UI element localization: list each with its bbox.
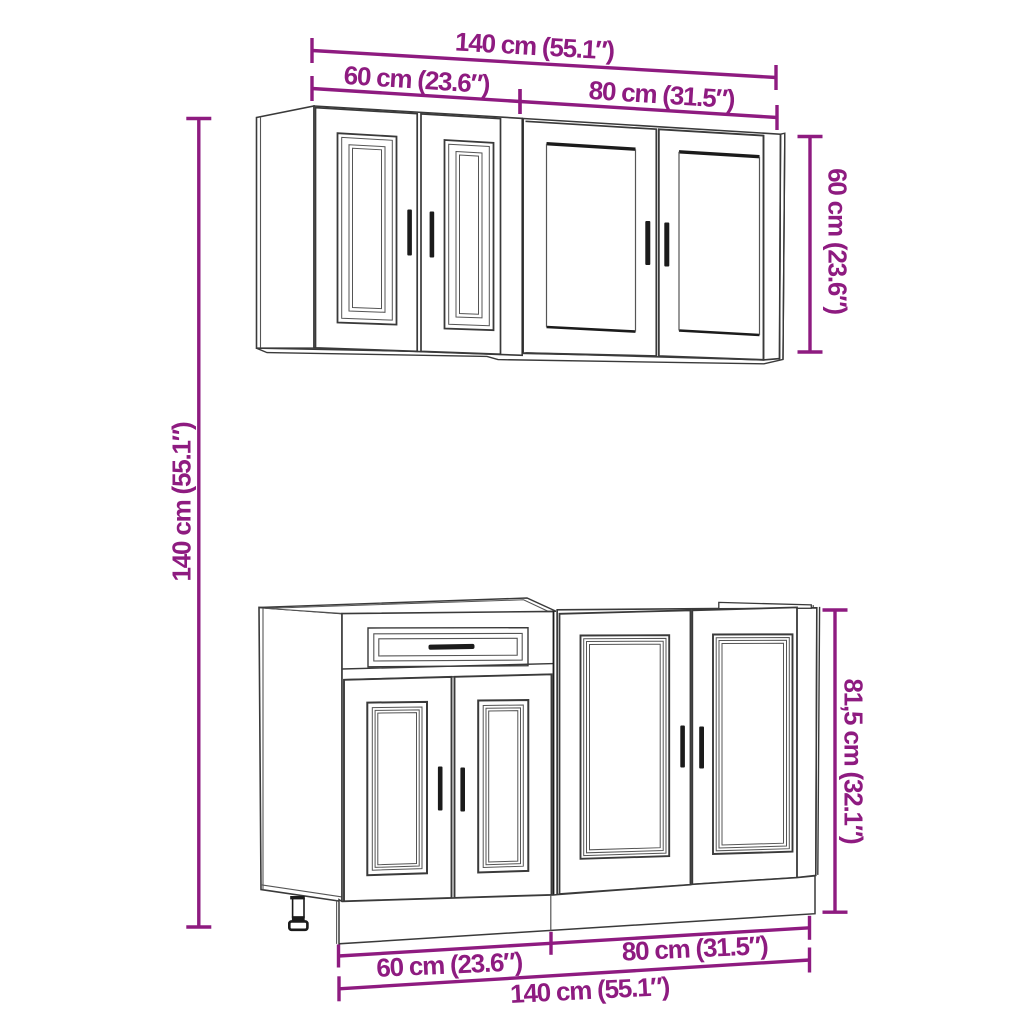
svg-text:140 cm (55.1″): 140 cm (55.1″) — [167, 422, 197, 582]
svg-text:60 cm (23.6″): 60 cm (23.6″) — [823, 168, 853, 314]
svg-text:81,5 cm (32.1″): 81,5 cm (32.1″) — [839, 678, 869, 844]
